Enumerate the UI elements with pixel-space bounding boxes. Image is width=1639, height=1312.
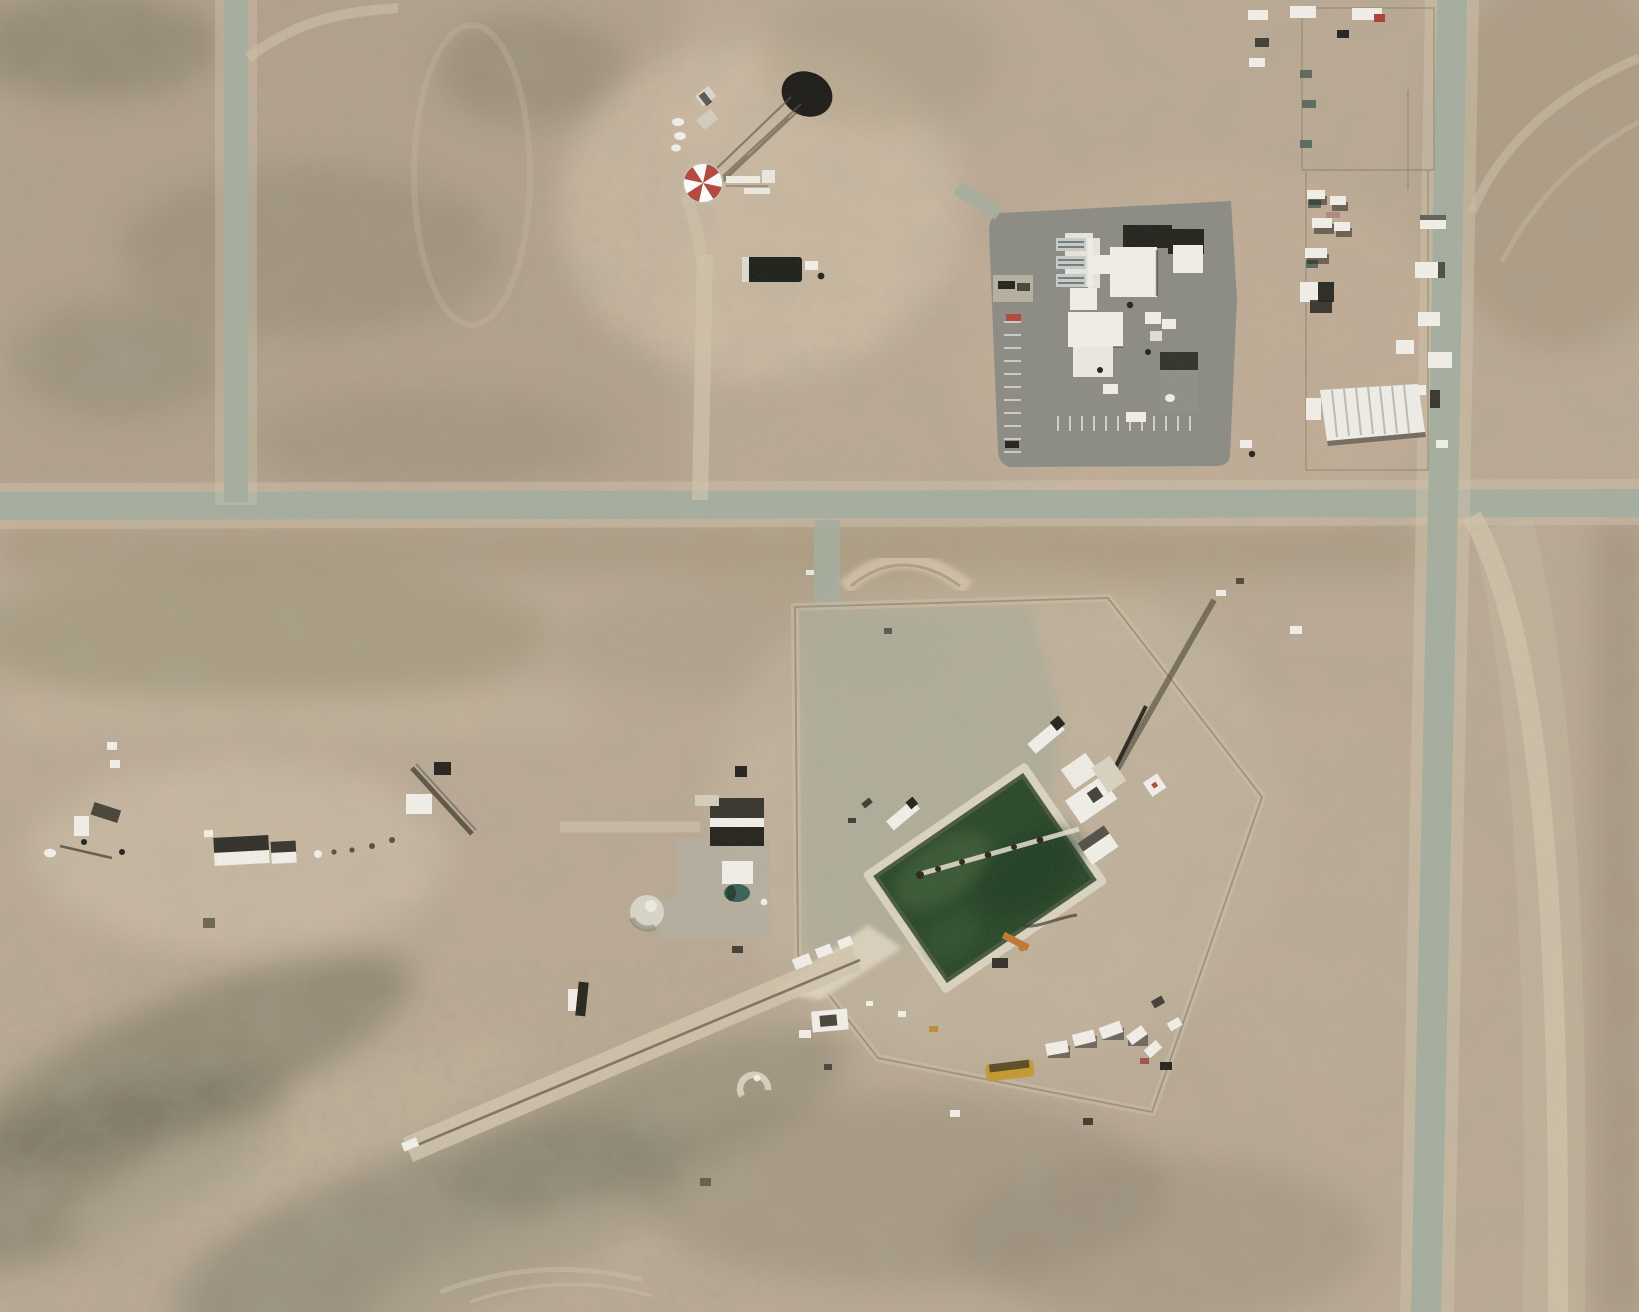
satellite-photo bbox=[0, 0, 1639, 1312]
satellite-photo-canvas bbox=[0, 0, 1639, 1312]
film-grain-overlay bbox=[0, 0, 1639, 1312]
